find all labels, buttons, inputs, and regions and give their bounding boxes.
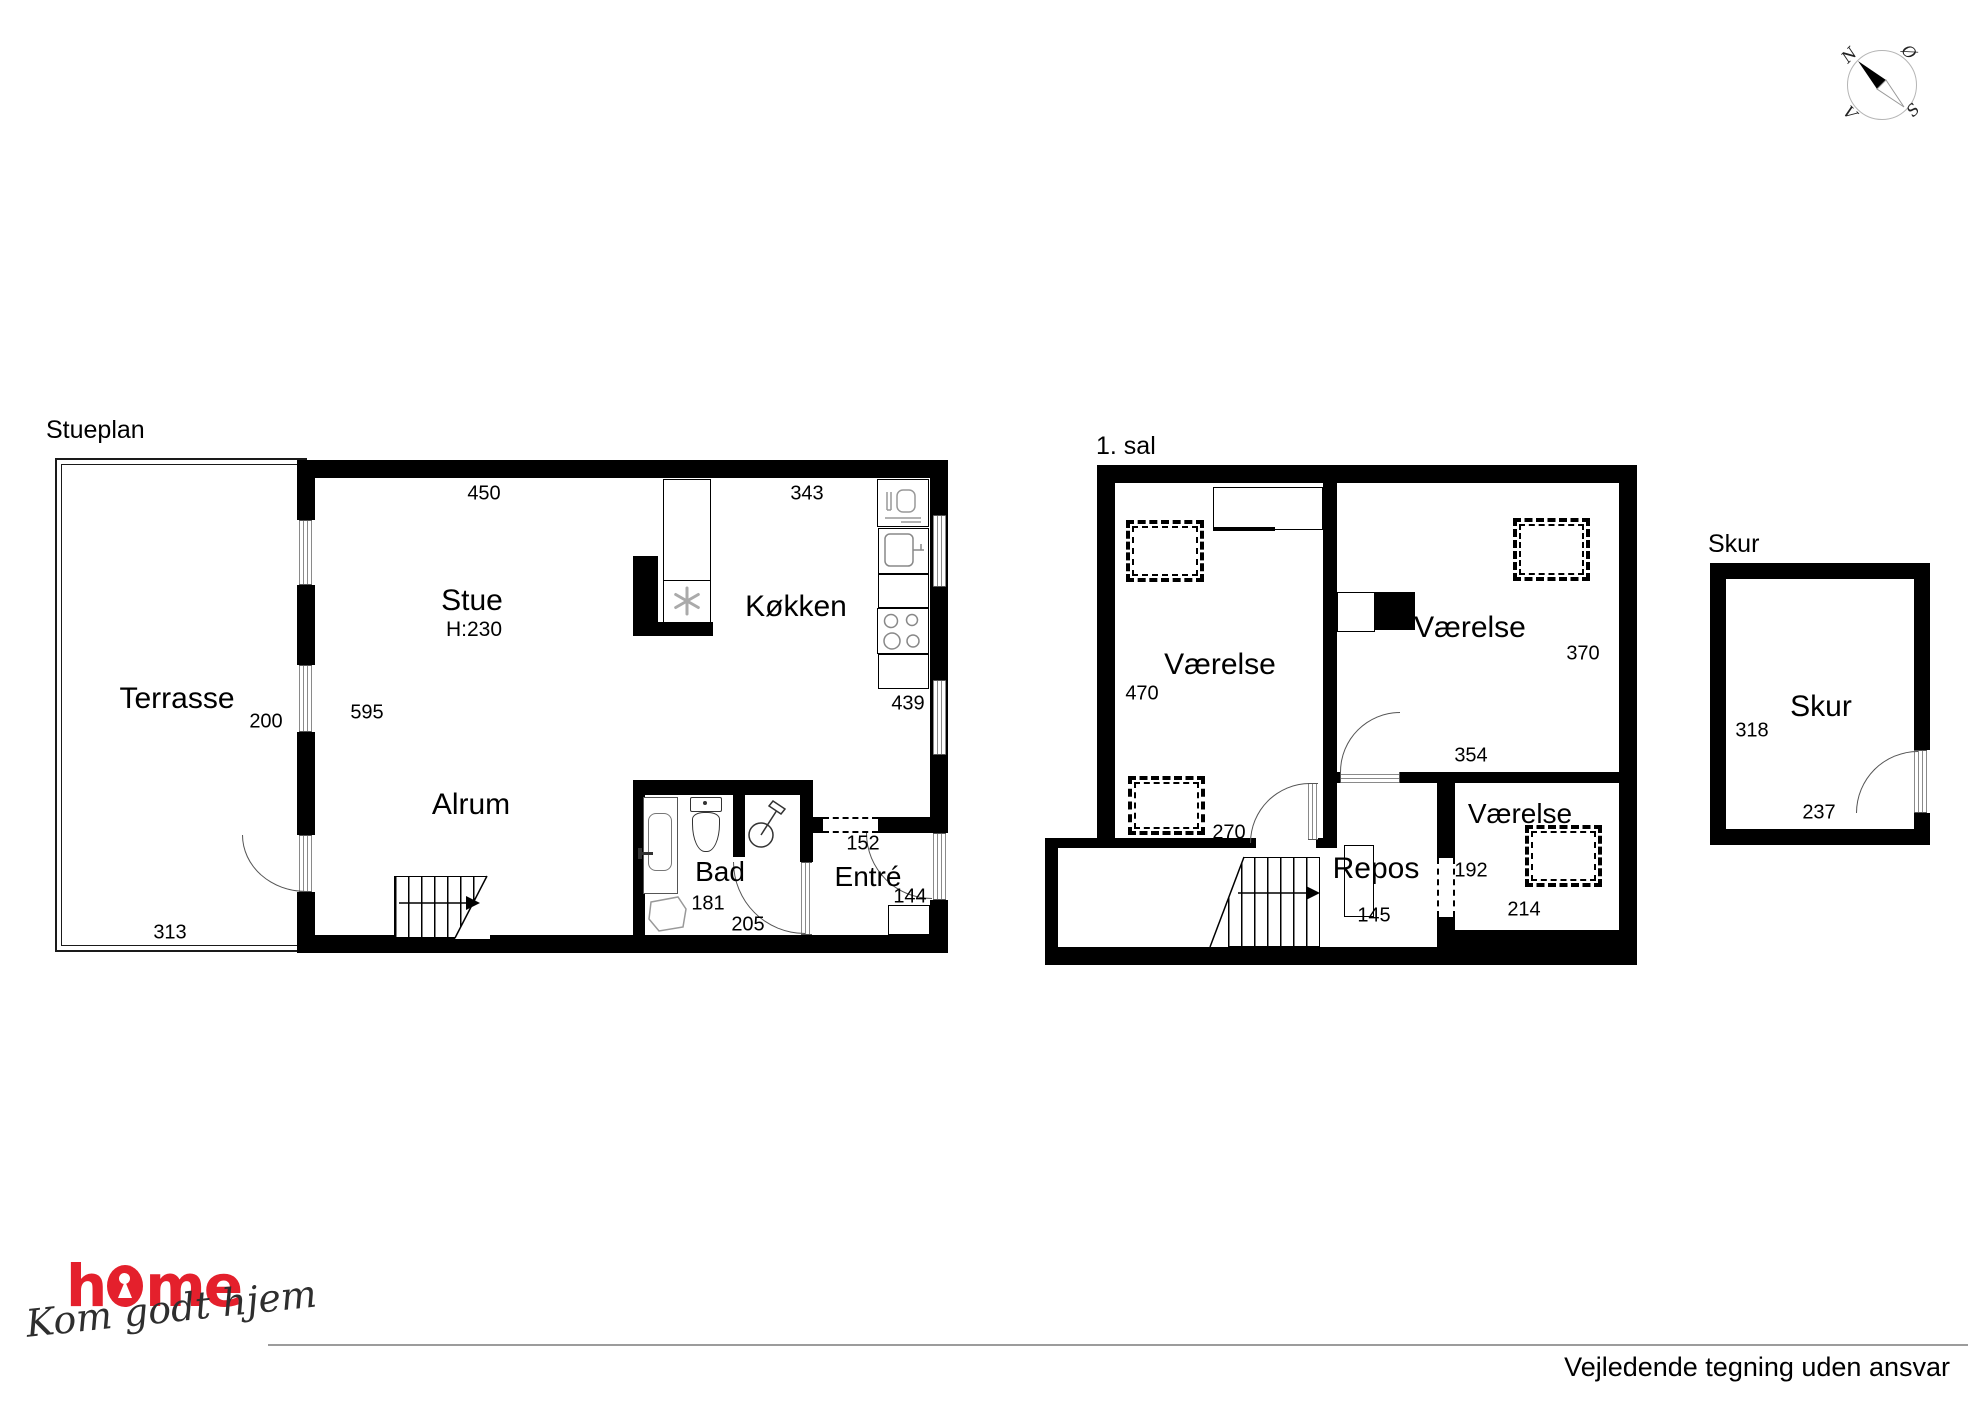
faucet-handle-icon (638, 848, 642, 859)
stue-depth-dim: 595 (350, 702, 383, 725)
kitchen-counter-2 (878, 654, 929, 689)
window-left-2 (299, 665, 312, 732)
footer-divider (268, 1344, 1968, 1346)
kitchen-counter-1 (878, 574, 929, 608)
alrum-label: Alrum (432, 788, 510, 822)
skylight-4 (1525, 825, 1602, 887)
ff-room-small-label: Værelse (1468, 798, 1572, 830)
skur-width-dim: 237 (1802, 802, 1835, 825)
skur-wall-left (1710, 563, 1726, 845)
ff-step-wall (1045, 838, 1115, 848)
bathroom-sink-icon (648, 813, 672, 871)
skur-wall-right-lower (1914, 813, 1930, 845)
first-floor-title: 1. sal (1096, 432, 1156, 461)
kokken-width-dim: 343 (790, 483, 823, 506)
ff-chimney-duct (1337, 592, 1375, 632)
stue-width-dim: 450 (467, 483, 500, 506)
bad-width-dim: 181 (691, 893, 724, 916)
stove-wall-horizontal (633, 622, 713, 636)
ff-room-right-door-swing (1340, 712, 1400, 772)
skur-wall-right-upper (1914, 563, 1930, 750)
window-left-1 (299, 520, 312, 585)
stueplan-wall-left-1 (297, 460, 315, 520)
ff-wardrobe-edge (1213, 527, 1275, 531)
entre-open-passage (823, 817, 878, 833)
bad-depth-dim: 205 (731, 914, 764, 937)
skylight-3 (1513, 518, 1590, 581)
stueplan-title: Stueplan (46, 416, 145, 445)
dishwasher-icon (877, 479, 929, 527)
ff-open-passage (1437, 858, 1455, 917)
skur-wall-bottom (1710, 829, 1930, 845)
ff-room-left-door-swing (1250, 783, 1310, 843)
entre-wall-stub-left (806, 817, 823, 833)
ff-room-left-width-dim: 270 (1212, 822, 1245, 845)
shower-icon (745, 795, 800, 853)
ff-repos-width-dim: 145 (1357, 905, 1390, 928)
stueplan-wall-left-2 (297, 585, 315, 665)
toilet-button-icon (703, 801, 707, 805)
faucet-icon (641, 852, 653, 855)
stairs-first-floor-arrow-icon (1200, 857, 1325, 948)
ff-room-left-depth-dim: 470 (1125, 683, 1158, 706)
terrasse-depth-dim: 200 (249, 711, 282, 734)
entre-width-dim: 144 (893, 886, 926, 909)
skur-title: Skur (1708, 530, 1759, 559)
floor-plan-page: N Ø S V Stueplan (0, 0, 1984, 1403)
ff-room-right-depth-dim: 370 (1566, 643, 1599, 666)
bad-wall-top (633, 780, 813, 795)
ff-room-small-width-dim: 192 (1454, 860, 1487, 883)
stueplan-wall-right-lower (930, 900, 948, 953)
wood-stove-icon (663, 580, 711, 623)
cooktop-burners-icon (877, 608, 929, 654)
ff-wall-right (1619, 465, 1637, 965)
laundry-basket-icon (646, 893, 690, 934)
skylight-1 (1126, 520, 1204, 582)
ff-wall-left-upper (1097, 465, 1115, 848)
skylight-2 (1128, 776, 1205, 835)
terrasse-width-dim: 313 (153, 922, 186, 945)
entre-wall-right (878, 817, 948, 833)
ff-room-small-bottom-wall (1437, 930, 1619, 947)
skur-wall-top (1710, 563, 1930, 579)
kokken-depth-dim: 439 (891, 693, 924, 716)
kokken-label: Køkken (745, 590, 847, 624)
window-right-1 (933, 515, 946, 587)
stueplan-wall-left-3 (297, 732, 315, 835)
disclaimer-text: Vejledende tegning uden ansvar (1000, 1352, 1950, 1383)
stueplan-wall-top (297, 460, 948, 478)
ff-chimney-block (1375, 592, 1415, 630)
ff-wardrobe (1213, 487, 1323, 530)
ff-repos-label: Repos (1333, 852, 1420, 886)
entre-closet (888, 905, 930, 935)
stueplan-wall-left-4 (297, 892, 315, 953)
ff-room-right-bottom-wall (1400, 772, 1619, 783)
ff-room-left-label: Værelse (1164, 648, 1276, 682)
stue-label: Stue (441, 584, 503, 618)
skur-door-swing (1856, 751, 1918, 813)
ff-wall-top (1097, 465, 1637, 483)
toilet-bowl-icon (692, 812, 720, 852)
chimney (663, 479, 711, 581)
entre-label: Entré (835, 861, 902, 893)
ff-room-small-depth-dim: 214 (1507, 899, 1540, 922)
entre-opening-dim: 152 (846, 833, 879, 856)
bad-label: Bad (695, 856, 745, 888)
ff-room-small-wall-upper (1437, 783, 1455, 858)
ff-room-left-bottom-wall-2 (1316, 838, 1337, 848)
stue-ceiling-height: H:230 (446, 618, 502, 642)
stairs-ground-arrow-icon (394, 876, 490, 939)
ff-divider-wall (1323, 465, 1337, 783)
front-door-leaf (933, 833, 946, 900)
ff-wall-left-lower (1045, 838, 1058, 965)
window-right-2 (933, 680, 946, 755)
ff-room-right-door-leaf (1340, 772, 1400, 783)
kitchen-sink-icon (878, 528, 929, 574)
terrasse-label: Terrasse (119, 682, 234, 716)
ff-wall-bottom (1045, 947, 1637, 965)
ff-room-right-width-dim: 354 (1454, 745, 1487, 768)
bad-shower-divider (733, 795, 745, 857)
ff-room-right-bottom-wall-2 (1323, 772, 1340, 783)
skur-label: Skur (1790, 690, 1852, 724)
skur-depth-dim: 318 (1735, 720, 1768, 743)
ff-room-right-label: Værelse (1414, 611, 1526, 645)
